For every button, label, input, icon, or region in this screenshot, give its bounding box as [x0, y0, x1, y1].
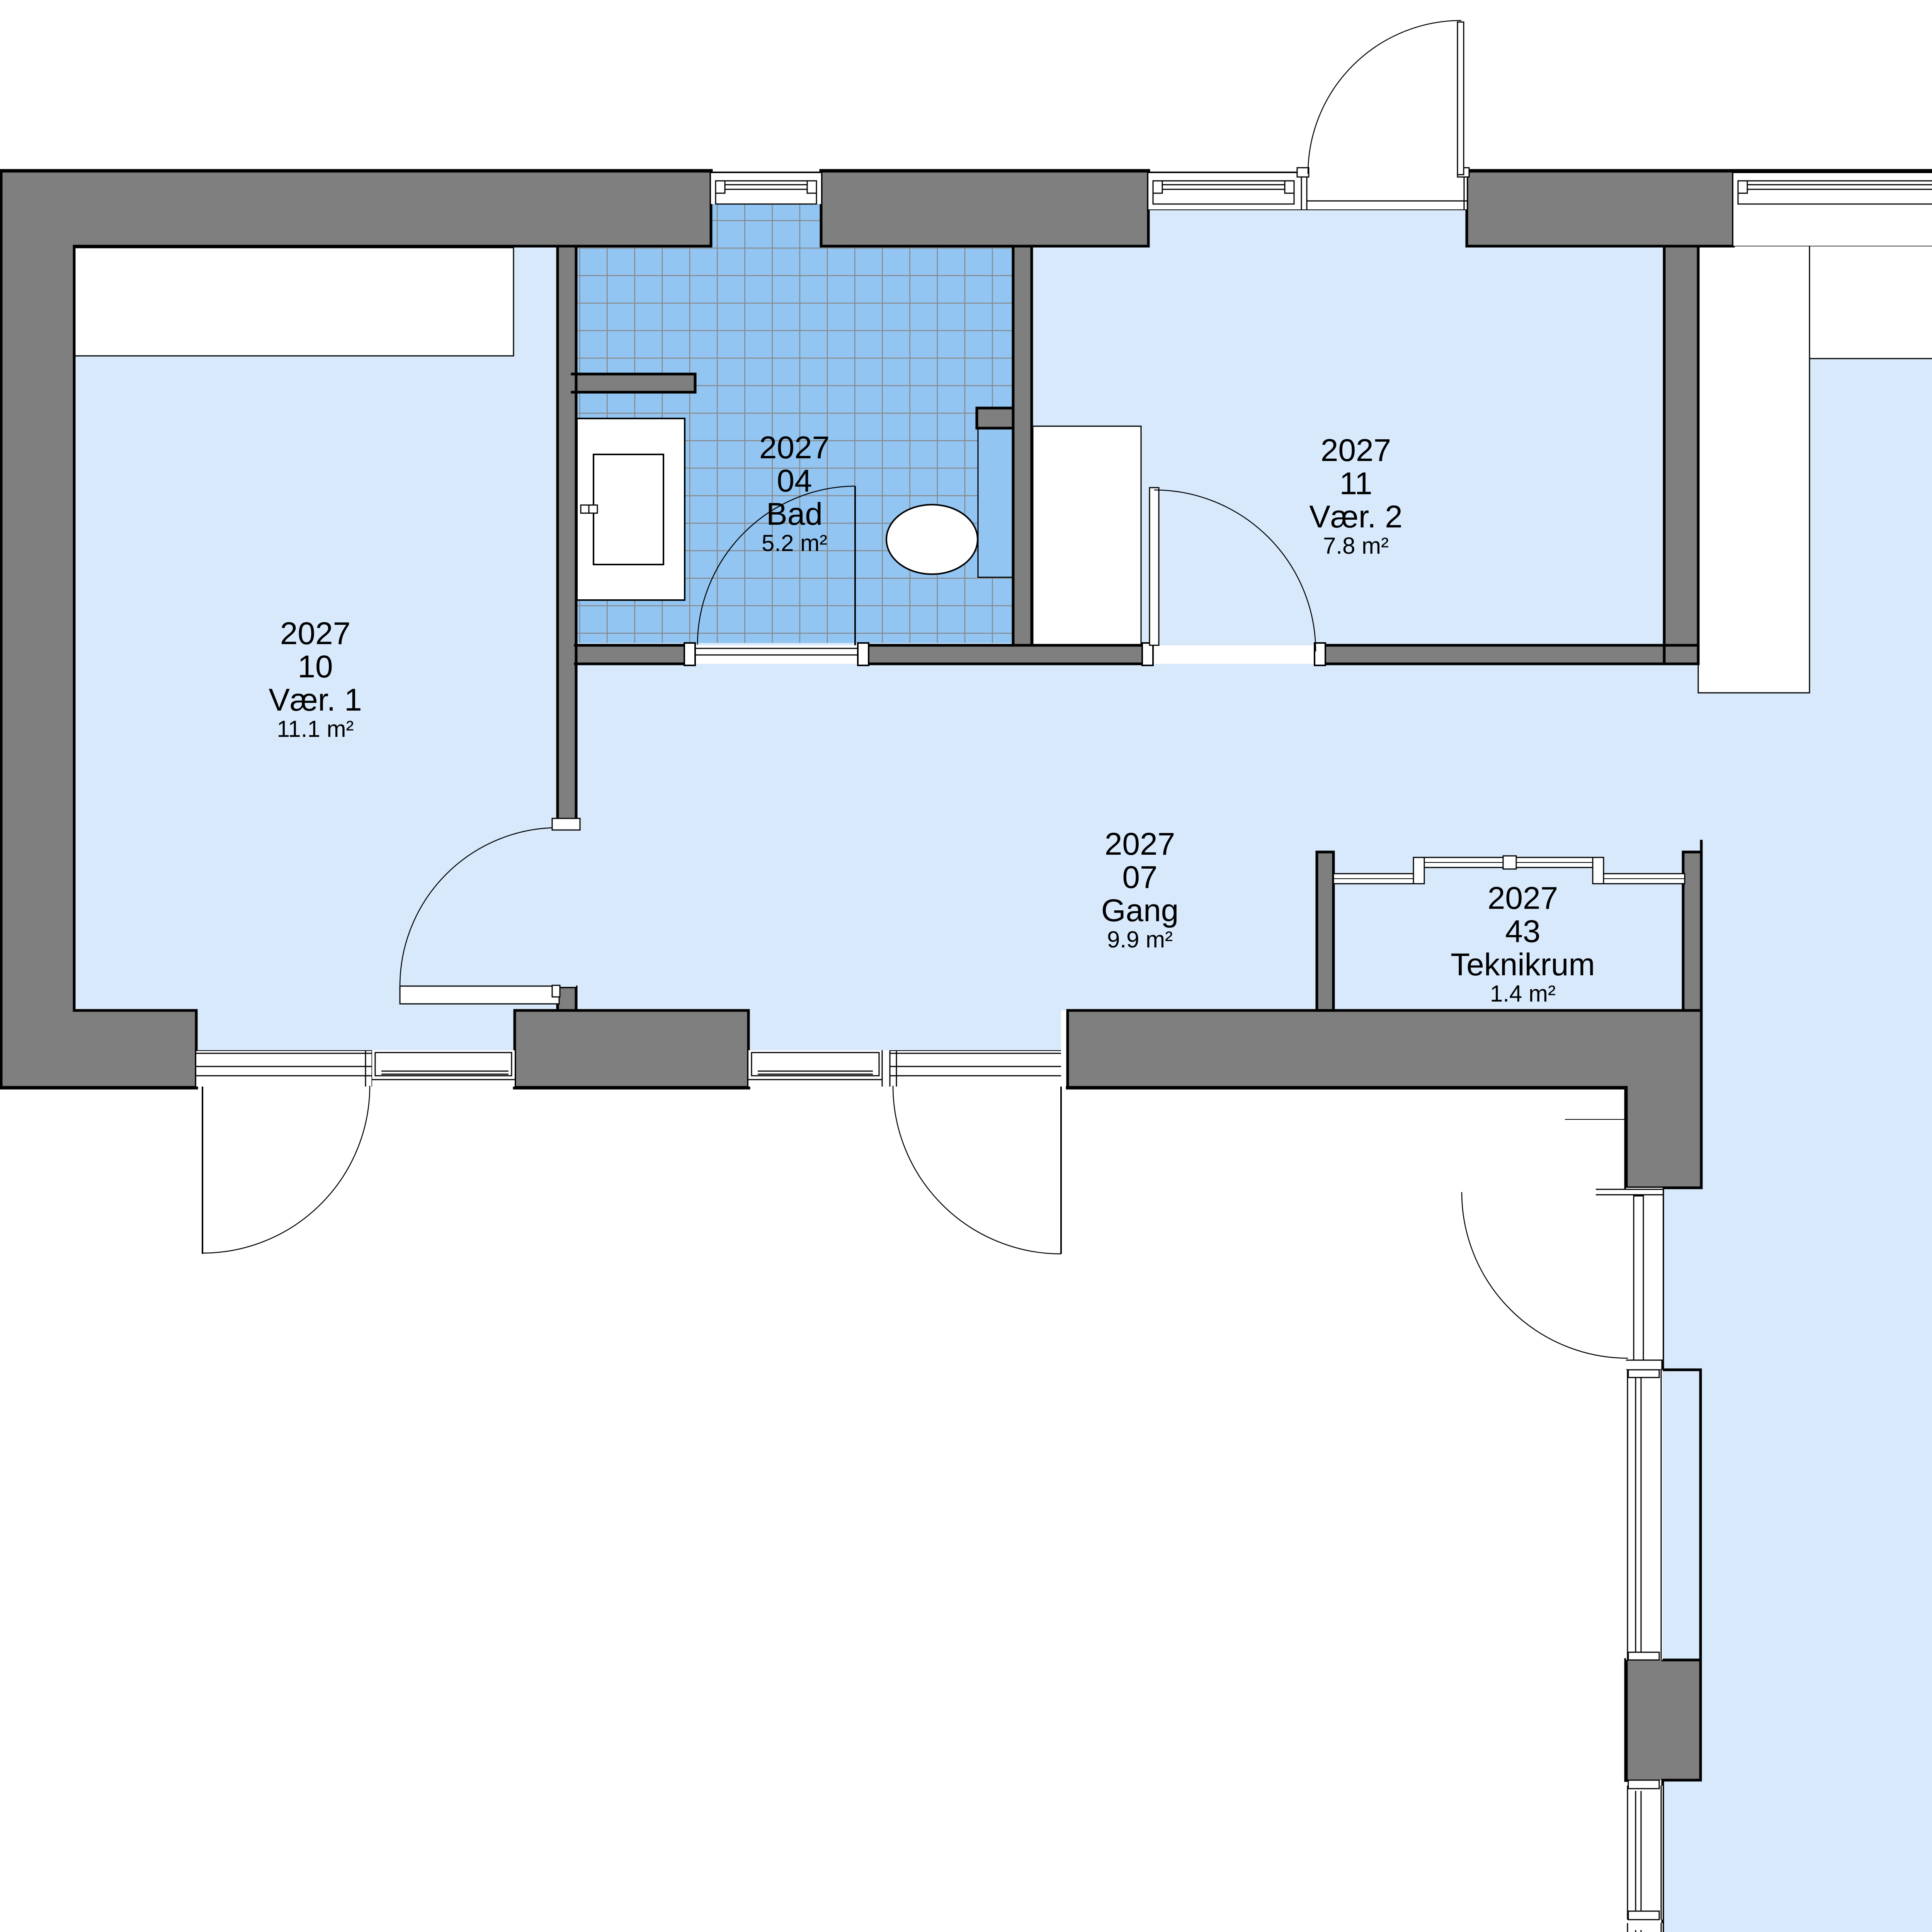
svg-text:04: 04 [777, 463, 812, 498]
svg-text:Vær. 2: Vær. 2 [1309, 499, 1403, 534]
svg-text:9.9 m²: 9.9 m² [1107, 927, 1173, 952]
svg-text:7.8 m²: 7.8 m² [1323, 533, 1389, 559]
svg-text:2027: 2027 [1105, 827, 1175, 862]
svg-text:2027: 2027 [1321, 433, 1391, 468]
svg-text:Gang: Gang [1101, 893, 1179, 928]
svg-text:Vær. 1: Vær. 1 [269, 682, 362, 718]
svg-text:Bad: Bad [766, 497, 823, 532]
svg-text:43: 43 [1505, 914, 1540, 949]
svg-text:10: 10 [298, 649, 333, 684]
svg-text:1.4 m²: 1.4 m² [1490, 981, 1556, 1007]
svg-text:2027: 2027 [1488, 881, 1558, 916]
svg-text:2027: 2027 [280, 616, 350, 651]
svg-text:07: 07 [1122, 860, 1157, 895]
svg-text:5.2 m²: 5.2 m² [762, 530, 827, 556]
svg-text:11: 11 [1339, 466, 1372, 501]
svg-text:2027: 2027 [759, 430, 830, 465]
svg-text:11.1 m²: 11.1 m² [277, 716, 354, 742]
svg-text:Teknikrum: Teknikrum [1451, 947, 1595, 982]
